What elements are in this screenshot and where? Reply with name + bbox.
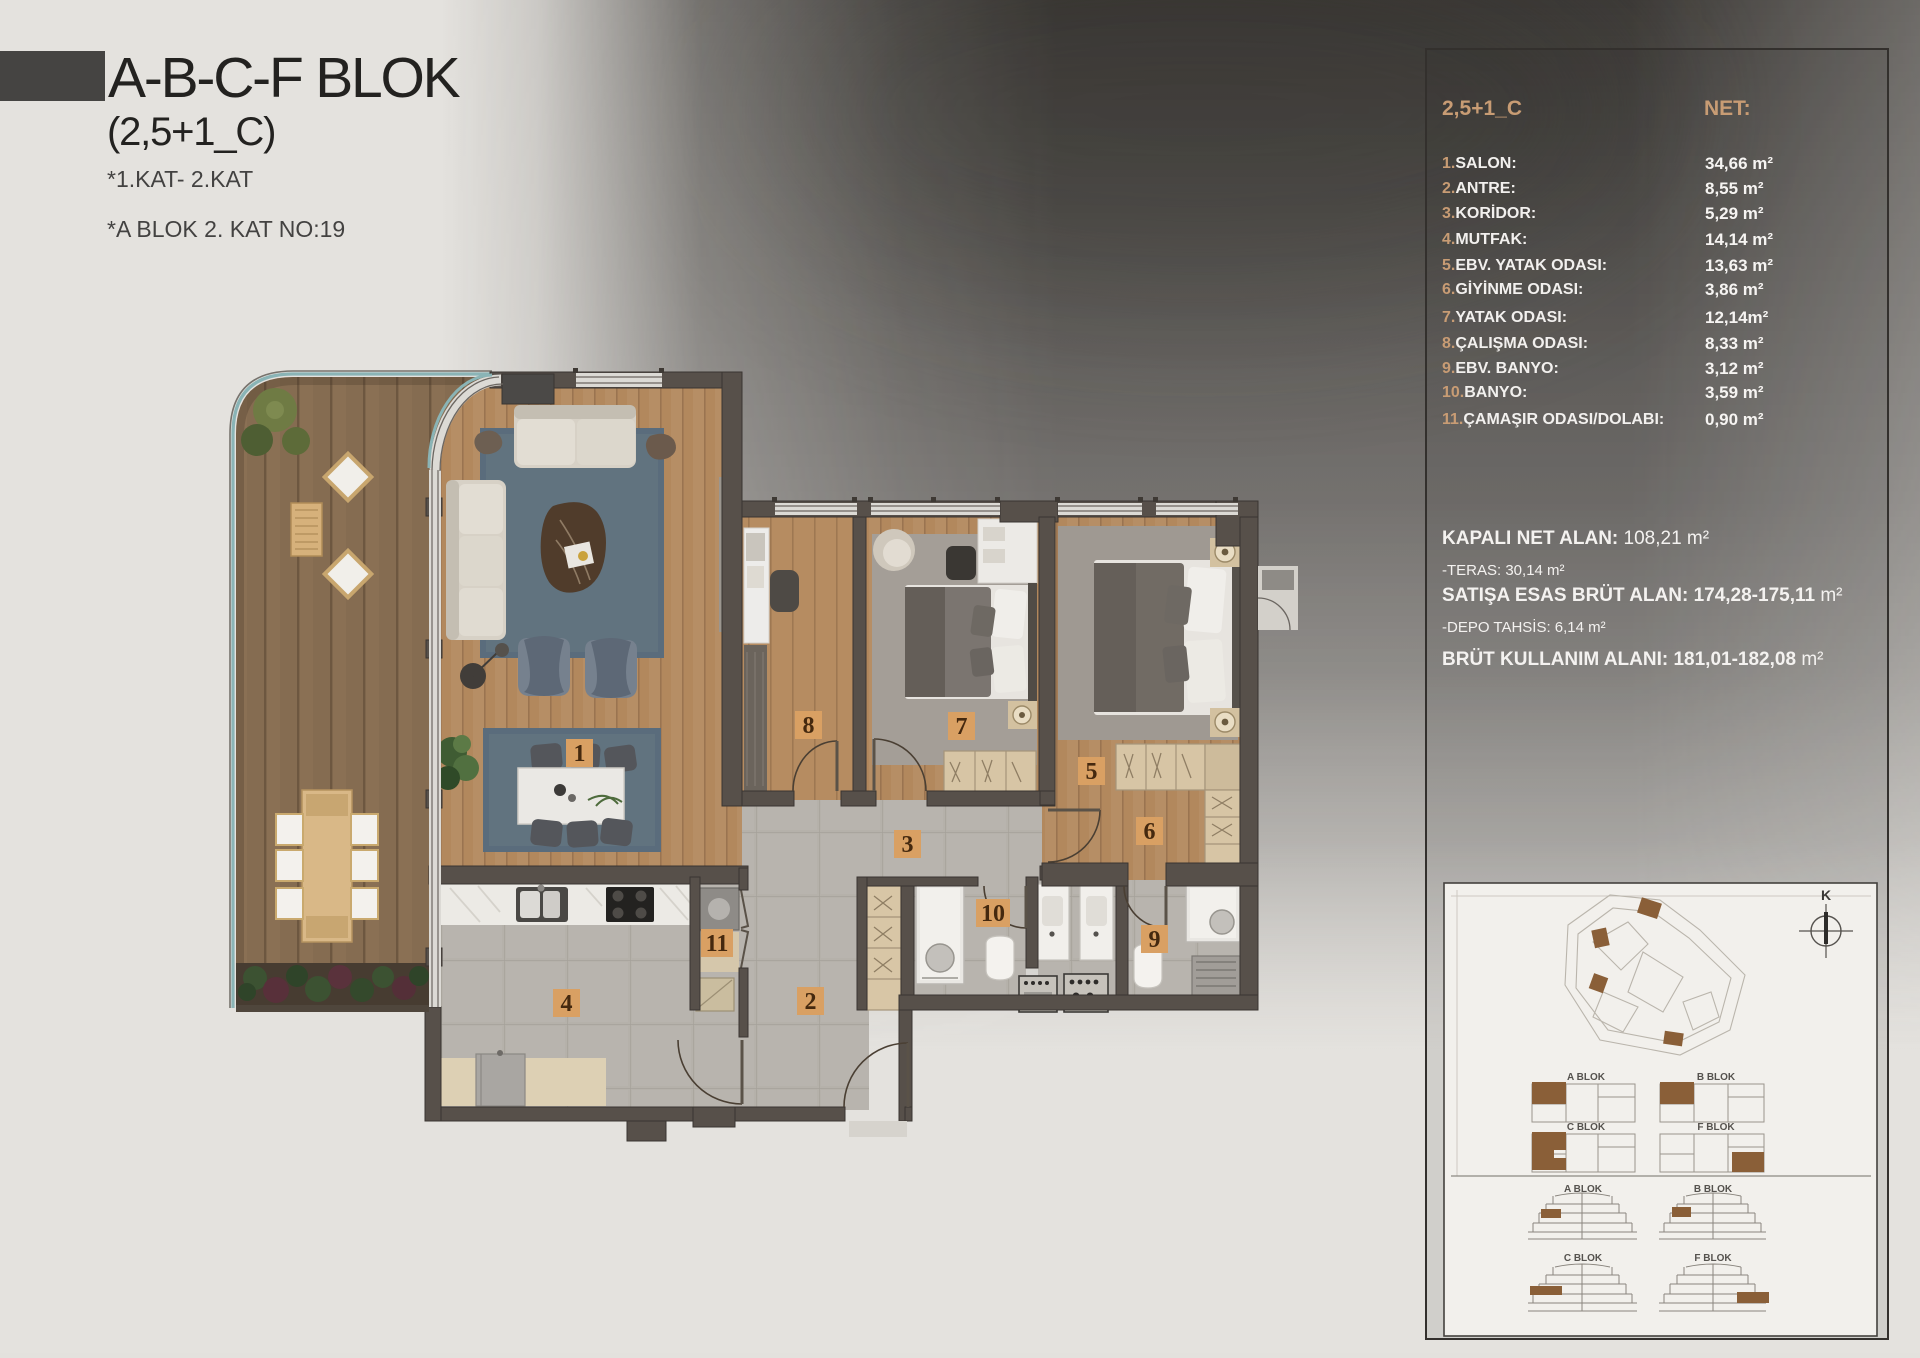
svg-text:B BLOK: B BLOK: [1697, 1072, 1736, 1083]
svg-text:A BLOK: A BLOK: [1567, 1072, 1606, 1083]
svg-text:2: 2: [805, 989, 817, 1015]
svg-text:6: 6: [1144, 819, 1156, 845]
svg-text:10: 10: [981, 901, 1005, 927]
svg-text:3: 3: [902, 832, 914, 858]
svg-text:4: 4: [561, 991, 573, 1017]
svg-text:C BLOK: C BLOK: [1567, 1122, 1606, 1133]
svg-text:5: 5: [1086, 759, 1098, 785]
svg-text:F BLOK: F BLOK: [1694, 1253, 1732, 1264]
svg-text:8: 8: [803, 713, 815, 739]
svg-text:9: 9: [1149, 927, 1161, 953]
svg-text:7: 7: [956, 714, 968, 740]
svg-text:11: 11: [706, 931, 729, 957]
svg-text:F BLOK: F BLOK: [1697, 1122, 1735, 1133]
svg-text:K: K: [1821, 887, 1831, 903]
svg-text:C BLOK: C BLOK: [1564, 1253, 1603, 1264]
svg-text:1: 1: [574, 741, 586, 767]
